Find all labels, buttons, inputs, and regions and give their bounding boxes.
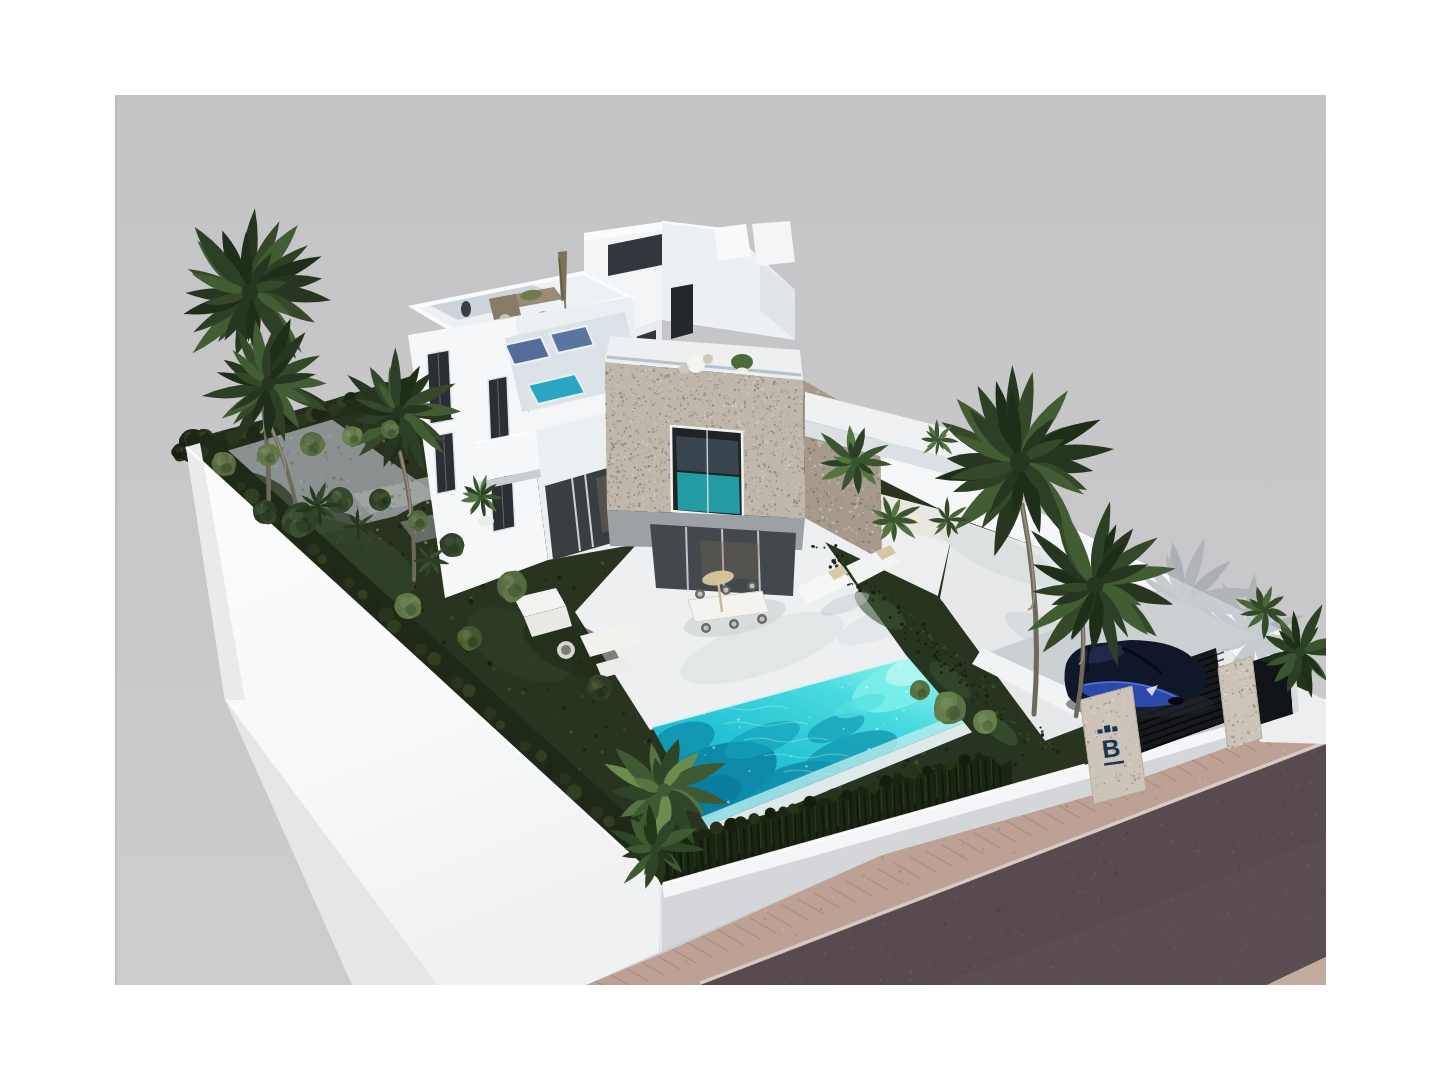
- svg-text:B: B: [1100, 733, 1122, 763]
